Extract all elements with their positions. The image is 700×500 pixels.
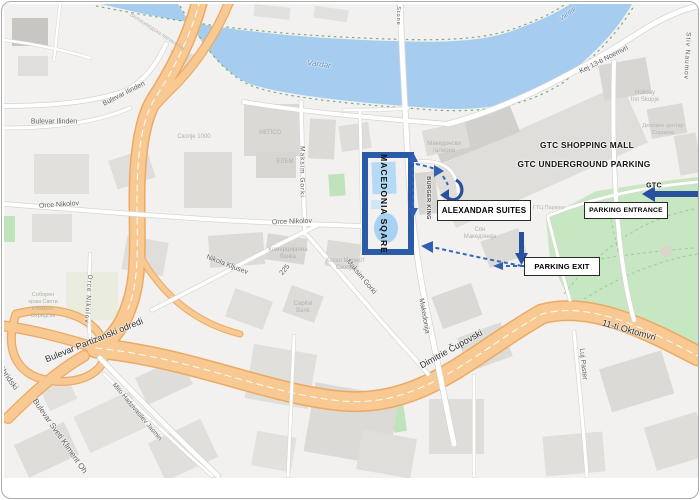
macedonia-square-label: MACEDONIA SQARE [379, 154, 389, 254]
map-canvas[interactable]: Vardar Vardar Велосипедска патека Кеј Bu… [4, 4, 698, 478]
annotation-layer [4, 4, 698, 478]
parking-exit-label: PARKING EXIT [524, 257, 600, 276]
parking-entrance-label: PARKING ENTRANCE [584, 202, 668, 219]
alexandar-suites-label: ALEXANDAR SUITES [437, 200, 531, 221]
parking-exit-text: PARKING EXIT [534, 262, 589, 271]
screenshot-frame: Vardar Vardar Велосипедска патека Кеј Bu… [1, 1, 699, 499]
parking-entrance-text: PARKING ENTRANCE [589, 207, 663, 214]
parking-entrance-arrow [642, 186, 698, 202]
hook-arrow [440, 180, 462, 201]
alexandar-suites-text: ALEXANDAR SUITES [442, 206, 527, 215]
